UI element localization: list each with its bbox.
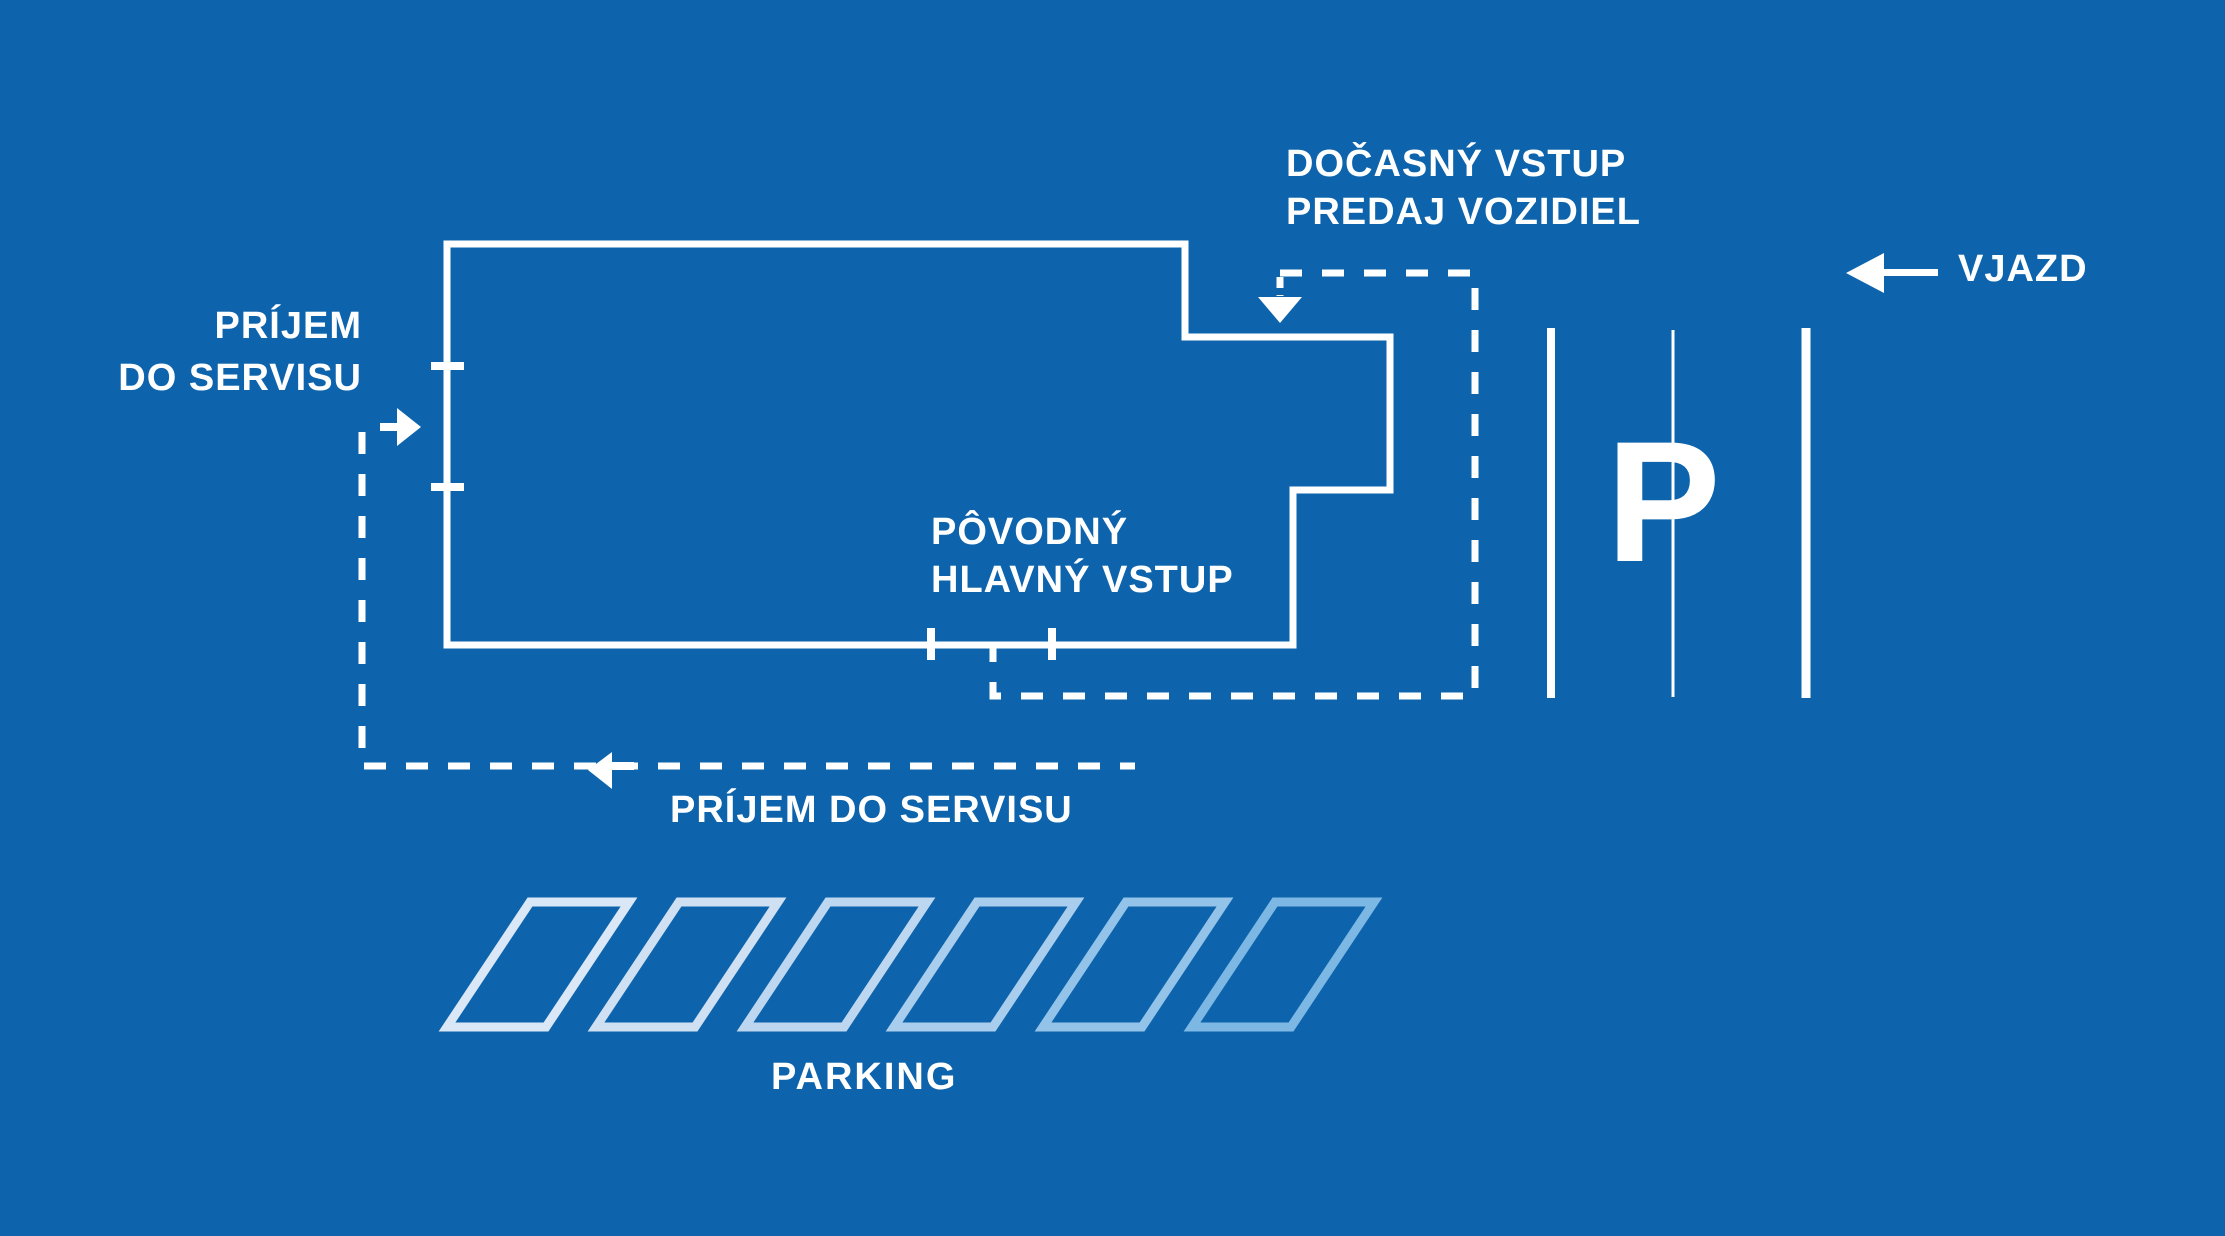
temporary-entrance-label-line1: DOČASNÝ VSTUP <box>1286 140 1641 188</box>
site-plan-canvas: P DOČASNÝ VSTUP PREDAJ VOZIDIEL VJAZD PR… <box>0 0 2225 1236</box>
entry-arrow-stem <box>1884 269 1938 276</box>
service-in-arrow-stem <box>380 423 398 431</box>
parking-label: PARKING <box>771 1053 957 1101</box>
parking-spot <box>745 902 927 1027</box>
building-outline <box>447 244 1390 645</box>
service-reception-label: PRÍJEM DO SERVISU <box>100 300 362 404</box>
original-main-entrance-label-line2: HLAVNÝ VSTUP <box>931 556 1234 604</box>
temporary-entrance-arrow-icon <box>1258 297 1302 323</box>
parking-spot <box>894 902 1076 1027</box>
parking-spot <box>447 902 629 1027</box>
parking-spot <box>1192 902 1374 1027</box>
parking-spots <box>447 902 1374 1027</box>
temporary-entrance-label: DOČASNÝ VSTUP PREDAJ VOZIDIEL <box>1286 140 1641 236</box>
temporary-entrance-label-line2: PREDAJ VOZIDIEL <box>1286 188 1641 236</box>
service-route-arrow-stem <box>612 762 634 770</box>
parking-spot <box>596 902 778 1027</box>
service-route-arrow-icon <box>588 752 612 789</box>
original-main-entrance-label-line1: PÔVODNÝ <box>931 508 1234 556</box>
site-plan-graphics <box>0 0 2225 1236</box>
original-main-entrance-label: PÔVODNÝ HLAVNÝ VSTUP <box>931 508 1234 604</box>
parking-spot <box>1043 902 1225 1027</box>
service-reception-label-line2: DO SERVISU <box>100 352 362 404</box>
service-in-arrow-icon <box>397 408 421 446</box>
entry-label: VJAZD <box>1958 245 2088 293</box>
parking-symbol: P <box>1606 416 1721 588</box>
service-reception-label-line1: PRÍJEM <box>100 300 362 352</box>
service-route-label: PRÍJEM DO SERVISU <box>670 786 1073 834</box>
entry-arrow-icon <box>1846 253 1884 293</box>
